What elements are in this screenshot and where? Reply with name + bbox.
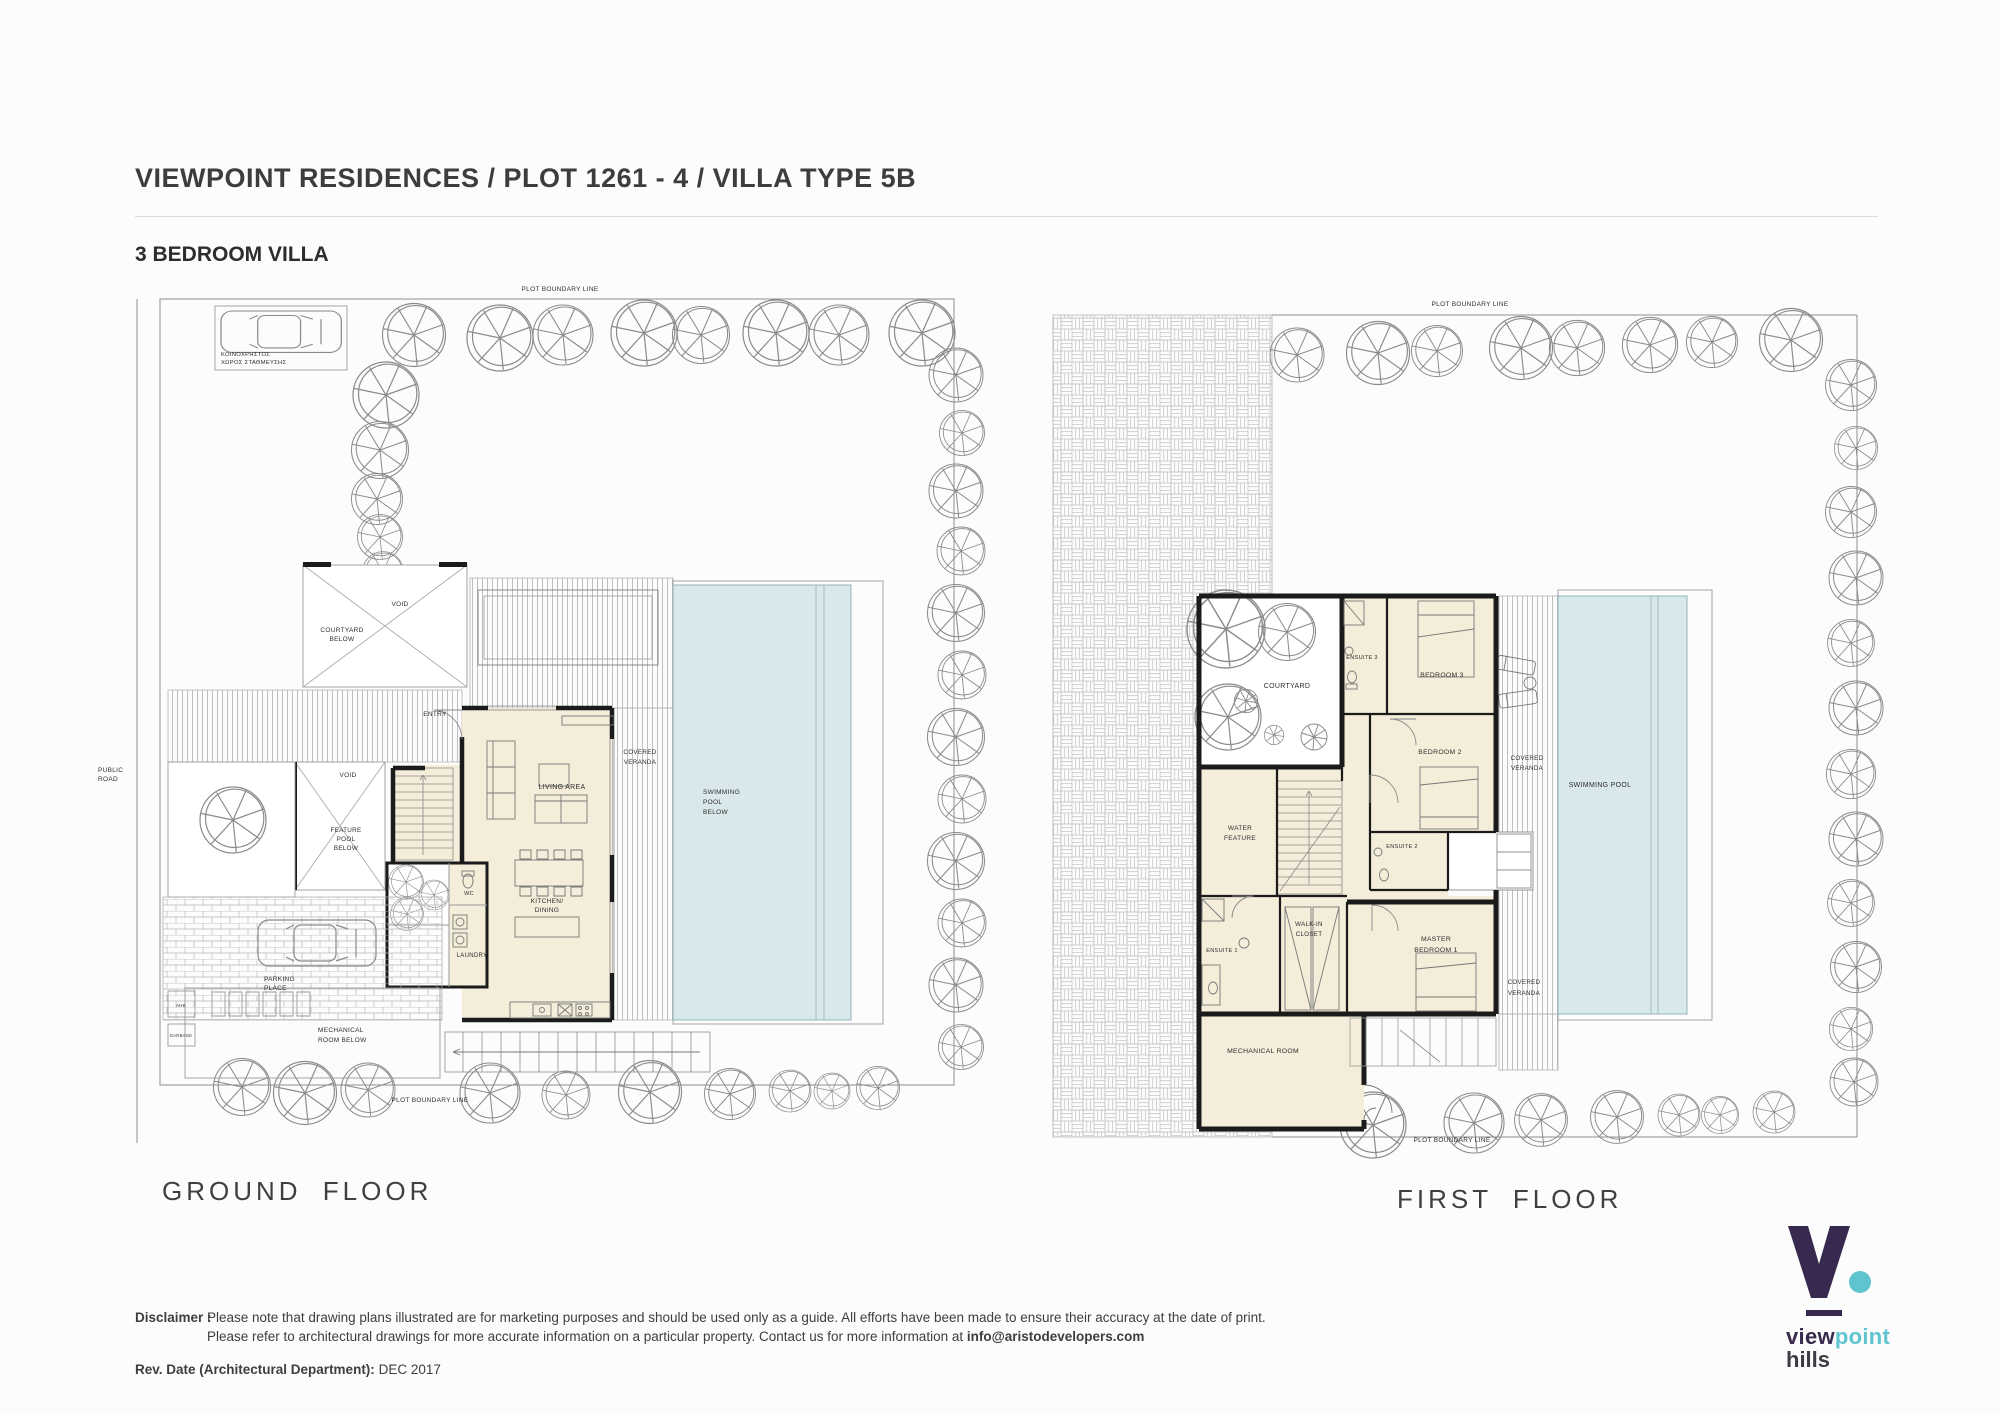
label-parking-place: PARKING — [264, 976, 295, 983]
label-ahk: AHK — [176, 1003, 187, 1008]
label-bedroom-3: BEDROOM 3 — [1420, 672, 1464, 679]
svg-text:VERANDA: VERANDA — [624, 759, 657, 766]
svg-text:PLACE: PLACE — [264, 985, 287, 992]
svg-text:ΧΩΡΟΣ ΣΤΑΘΜΕΥΣΗΣ: ΧΩΡΟΣ ΣΤΑΘΜΕΥΣΗΣ — [221, 360, 287, 366]
label-garbage: GARBAGE — [170, 1033, 193, 1038]
label-mechanical-room: MECHANICAL ROOM — [1227, 1048, 1299, 1055]
label-ensuite-1: ENSUITE 1 — [1206, 948, 1238, 954]
svg-text:ROOM BELOW: ROOM BELOW — [318, 1037, 367, 1044]
label-covered-veranda-bottom: COVERED — [1508, 979, 1541, 986]
label-living-area: LIVING AREA — [539, 784, 586, 791]
ground-floor-plan: ΚΟΙΝΟΧΡΗΣΤΟΣ ΧΩΡΟΣ ΣΤΑΘΜΕΥΣΗΣ — [90, 275, 990, 1160]
first-floor-plan: PLOT BOUNDARY LINE PLOT BOUNDARY LINE CO… — [1050, 285, 1930, 1165]
label-kitchen-dining: KITCHEN/ — [531, 898, 564, 905]
sheet: { "header": { "title": "VIEWPOINT RESIDE… — [0, 0, 2000, 1414]
page-subtitle: 3 BEDROOM VILLA — [135, 243, 329, 267]
label-covered-veranda-mid: COVERED — [1511, 755, 1544, 762]
gf-parking — [163, 897, 442, 1020]
gf-entry-walkway — [168, 690, 462, 762]
label-plot-boundary-bottom: PLOT BOUNDARY LINE — [1414, 1137, 1491, 1144]
label-courtyard-below: COURTYARD — [320, 627, 363, 634]
svg-text:CLOSET: CLOSET — [1296, 931, 1323, 938]
logo-wordmark: viewpoint — [1786, 1325, 1906, 1348]
ff-swimming-pool — [1558, 590, 1712, 1020]
svg-text:ROAD: ROAD — [98, 776, 118, 783]
label-water-feature: WATER — [1228, 825, 1252, 832]
ff-courtyard — [1187, 590, 1342, 767]
header-divider — [135, 216, 1878, 217]
svg-text:BELOW: BELOW — [703, 809, 729, 816]
logo-v-icon — [1786, 1224, 1886, 1320]
label-ensuite-2: ENSUITE 2 — [1386, 844, 1418, 850]
label-plot-boundary-top: PLOT BOUNDARY LINE — [1432, 301, 1509, 308]
gf-courtyard-void — [303, 562, 467, 687]
label-plot-boundary-bottom: PLOT BOUNDARY LINE — [392, 1097, 469, 1104]
label-courtyard: COURTYARD — [1264, 683, 1310, 690]
label-mechanical-room-below: MECHANICAL — [318, 1027, 364, 1034]
page-title: VIEWPOINT RESIDENCES / PLOT 1261 - 4 / V… — [135, 163, 916, 194]
disclaimer-label: Disclaimer : — [135, 1310, 212, 1325]
rev-date: Rev. Date (Architectural Department): DE… — [135, 1362, 441, 1377]
label-swimming-pool-below: SWIMMING — [703, 789, 740, 796]
disclaimer-email[interactable]: info@aristodevelopers.com — [967, 1329, 1144, 1344]
svg-text:POOL: POOL — [337, 836, 356, 843]
car-icon — [221, 311, 341, 352]
label-plot-boundary-top: PLOT BOUNDARY LINE — [522, 286, 599, 293]
svg-text:VERANDA: VERANDA — [1508, 990, 1541, 997]
label-master-bedroom: MASTER — [1421, 936, 1451, 943]
gf-communal-parking: ΚΟΙΝΟΧΡΗΣΤΟΣ ΧΩΡΟΣ ΣΤΑΘΜΕΥΣΗΣ — [215, 306, 347, 370]
disclaimer-line2: Please refer to architectural drawings f… — [207, 1329, 1144, 1344]
ground-floor-title: GROUND FLOOR — [162, 1176, 432, 1207]
svg-text:BEDROOM 1: BEDROOM 1 — [1414, 947, 1458, 954]
ff-access-box — [1448, 832, 1533, 890]
label-feature-pool: FEATURE — [330, 827, 361, 834]
label-void-2: VOID — [339, 772, 356, 779]
svg-text:VERANDA: VERANDA — [1511, 765, 1544, 772]
label-laundry: LAUNDRY — [457, 953, 488, 959]
label-ensuite-3: ENSUITE 3 — [1346, 655, 1378, 661]
label-covered-veranda: COVERED — [623, 749, 656, 756]
label-swimming-pool: SWIMMING POOL — [1569, 782, 1632, 789]
ff-steps — [1350, 1018, 1496, 1066]
disclaimer-line1: Please note that drawing plans illustrat… — [207, 1310, 1266, 1325]
label-entry: ENTRY — [423, 711, 447, 718]
first-floor-title: FIRST FLOOR — [1397, 1184, 1622, 1215]
svg-text:DINING: DINING — [535, 907, 560, 914]
svg-text:BELOW: BELOW — [334, 845, 358, 852]
logo-hills: hills — [1786, 1348, 1906, 1372]
svg-text:BELOW: BELOW — [330, 636, 356, 643]
svg-text:POOL: POOL — [703, 799, 722, 806]
brand-logo: viewpoint hills — [1786, 1224, 1906, 1372]
label-walk-in-closet: WALK-IN — [1295, 921, 1323, 928]
label-void: VOID — [391, 601, 408, 608]
label-bedroom-2: BEDROOM 2 — [1418, 749, 1462, 756]
svg-text:FEATURE: FEATURE — [1224, 835, 1256, 842]
label-public-road: PUBLIC — [98, 767, 123, 774]
svg-text:ΚΟΙΝΟΧΡΗΣΤΟΣ: ΚΟΙΝΟΧΡΗΣΤΟΣ — [221, 352, 270, 358]
label-wc: WC — [464, 891, 474, 897]
